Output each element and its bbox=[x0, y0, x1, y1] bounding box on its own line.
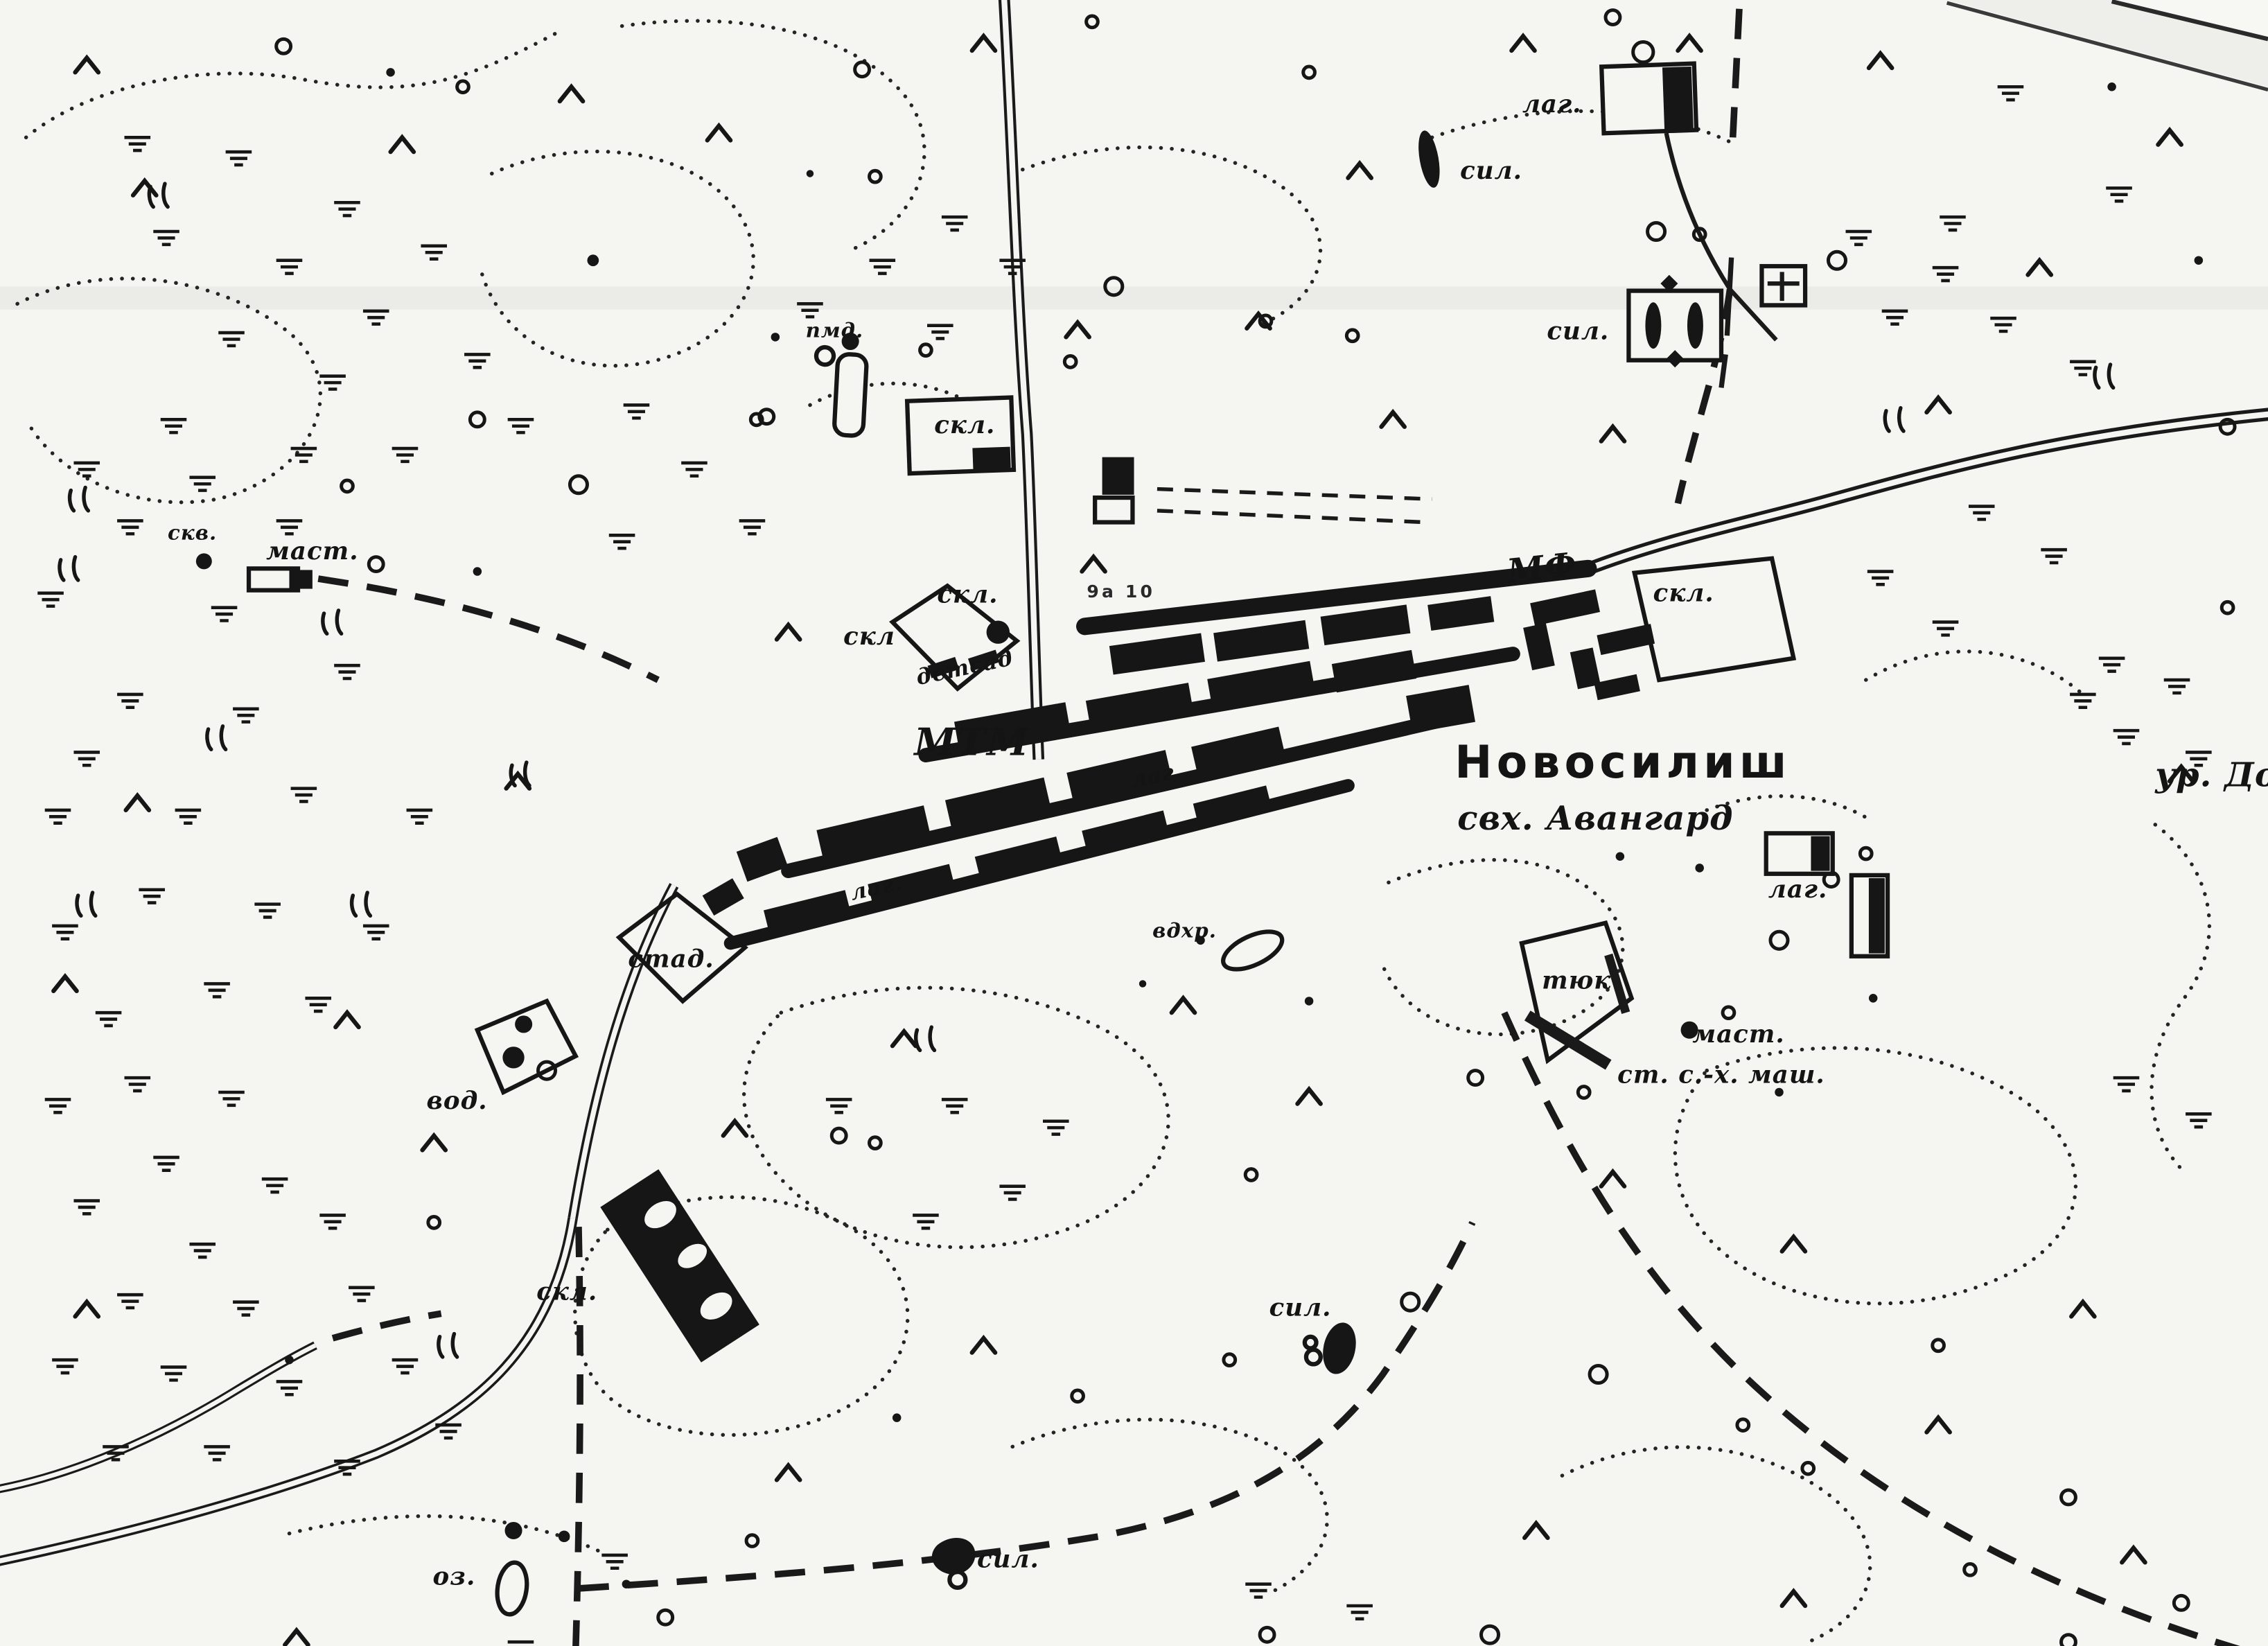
label-machine-station: ст. с.-х. маш. bbox=[1617, 1064, 1825, 1088]
silo-compound-ne bbox=[1628, 258, 1731, 388]
label-tyuk: тюк bbox=[1542, 970, 1611, 995]
label-warehouse-c2: скл bbox=[843, 626, 895, 650]
label-warehouse-sw: скл. bbox=[536, 1281, 597, 1305]
warehouse-parcel-east bbox=[1635, 559, 1794, 680]
page-corner-fold bbox=[1947, 0, 2268, 89]
label-camp-ne: лаг. bbox=[1522, 94, 1581, 118]
label-lake: оз. bbox=[433, 1566, 476, 1591]
map-canvas bbox=[0, 0, 2268, 1646]
lake-pond bbox=[494, 1561, 530, 1616]
scan-band bbox=[0, 286, 2268, 309]
cross-square bbox=[1761, 266, 1805, 305]
camp-building-ne bbox=[1601, 64, 1696, 134]
label-workshop-west: маст. bbox=[266, 541, 358, 565]
label-dairy-farm: МФ bbox=[1506, 548, 1579, 588]
label-pmd: пмд. bbox=[806, 321, 864, 341]
pmd-building bbox=[812, 331, 868, 436]
label-workshop-east: маст. bbox=[1692, 1024, 1784, 1048]
label-silo-s: сил. bbox=[977, 1549, 1039, 1573]
field-tracks bbox=[318, 0, 2239, 1646]
label-silo-se: сил. bbox=[1269, 1297, 1332, 1321]
label-silo-ne: сил. bbox=[1547, 320, 1609, 344]
label-spot-number: 9а 10 bbox=[1087, 583, 1155, 600]
sovkhoz-name: свх. Авангард bbox=[1457, 802, 1733, 835]
label-borehole-west: скв. bbox=[168, 524, 217, 544]
label-warehouse-top: скл. bbox=[934, 414, 995, 439]
silo-s bbox=[932, 1538, 976, 1588]
scanned-topographic-map: лаг. сил. сил. пмд. скл. скв. маст. скл.… bbox=[0, 0, 2268, 1646]
reservoir-pond bbox=[1217, 924, 1287, 977]
settlement-name: Новосилиш bbox=[1454, 742, 1791, 787]
waterworks-parcel bbox=[477, 1001, 576, 1092]
label-reservoir: вдхр. bbox=[1152, 922, 1217, 942]
warehouse-compound-sw bbox=[600, 1169, 759, 1363]
silo-se bbox=[1305, 1320, 1360, 1377]
label-warehouse-east: скл. bbox=[1653, 582, 1714, 606]
label-silo-top: сил. bbox=[1460, 160, 1522, 184]
roadside-cluster bbox=[1095, 457, 1134, 523]
silo-symbol bbox=[1415, 129, 1443, 189]
label-warehouse-c1: скл. bbox=[937, 584, 998, 608]
label-stadium: стад. bbox=[628, 948, 714, 972]
workshop-west bbox=[249, 568, 313, 590]
label-tract: ур. До bbox=[2155, 759, 2268, 792]
label-camp-east: лаг. bbox=[1768, 879, 1827, 903]
label-mtm: МТМ bbox=[914, 725, 1030, 762]
label-waterworks: вод. bbox=[427, 1090, 488, 1114]
